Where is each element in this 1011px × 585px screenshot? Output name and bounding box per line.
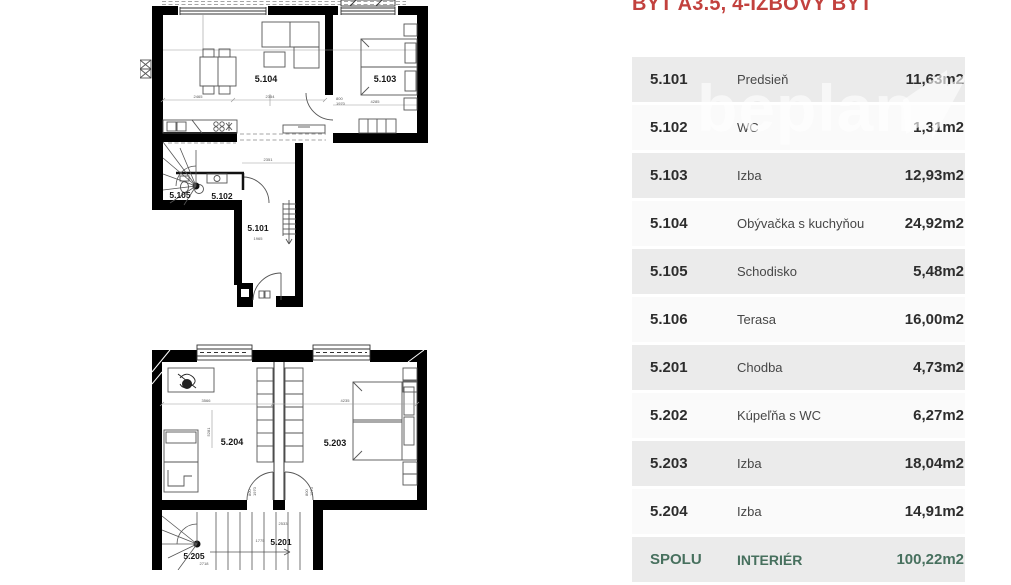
door-jamb-window [241, 289, 249, 297]
footer-interior-label: INTERIÉR [737, 552, 896, 568]
room-label-5104: 5.104 [255, 74, 278, 84]
room-name: Schodisko [737, 264, 913, 279]
room-number: 5.201 [632, 359, 737, 376]
room-number: 5.106 [632, 311, 737, 328]
footer-total-area: 100,22m2 [896, 551, 965, 568]
room-area: 4,73m2 [913, 359, 965, 376]
footer-total-label: SPOLU [632, 551, 737, 568]
dim-text: 2351 [264, 157, 274, 162]
table-row: 5.105Schodisko5,48m2 [632, 249, 965, 294]
room-name: Kúpeľňa s WC [737, 408, 913, 423]
dim-text: 2718 [200, 561, 210, 566]
room-area: 1,31m2 [913, 119, 965, 136]
room-name: WC [737, 120, 913, 135]
table-row: 5.203Izba18,04m2 [632, 441, 965, 486]
dim-text: 5281 [206, 427, 211, 437]
room-area: 14,91m2 [905, 503, 965, 520]
table-row: 5.106Terasa16,00m2 [632, 297, 965, 342]
floor-plan-second-level: 5.204 5.203 5.201 5.205 3566 4235 2533 1… [140, 344, 440, 570]
room-name: Terasa [737, 312, 905, 327]
table-row: 5.201Chodba4,73m2 [632, 345, 965, 390]
dim-text: 2465 [194, 94, 204, 99]
divider-wall [274, 362, 284, 500]
room-area: 16,00m2 [905, 311, 965, 328]
room-name: Obývačka s kuchyňou [737, 216, 905, 231]
room-number: 5.101 [632, 71, 737, 88]
room-area: 24,92m2 [905, 215, 965, 232]
room-name: Izba [737, 504, 905, 519]
table-row: 5.202Kúpeľňa s WC6,27m2 [632, 393, 965, 438]
furniture [164, 368, 417, 500]
table-footer-row: SPOLU INTERIÉR 100,22m2 [632, 537, 965, 582]
table-row: 5.101Predsieň11,63m2 [632, 57, 965, 102]
area-table-rows: 5.101Predsieň11,63m25.102WC1,31m25.103Iz… [632, 57, 965, 534]
table-row: 5.204Izba14,91m2 [632, 489, 965, 534]
floor-plan-first-level: 5.104 5.103 5.105 5.102 5.101 2465 2354 … [140, 0, 440, 315]
table-row: 5.104Obývačka s kuchyňou24,92m2 [632, 201, 965, 246]
room-name: Izba [737, 168, 905, 183]
room-area: 18,04m2 [905, 455, 965, 472]
apartment-title: BYT A3.5, 4-IZBOVÝ BYT [632, 0, 992, 16]
room-area: 11,63m2 [906, 71, 965, 88]
dim-text: 1965 [254, 236, 264, 241]
table-row: 5.102WC1,31m2 [632, 105, 965, 150]
dim-text: 2533 [279, 521, 289, 526]
room-number: 5.203 [632, 455, 737, 472]
room-name: Izba [737, 456, 905, 471]
spiral-stair [162, 512, 201, 570]
room-label-5201: 5.201 [270, 537, 292, 547]
room-label-5103: 5.103 [374, 74, 397, 84]
room-name: Predsieň [737, 72, 906, 87]
dim-text: 2354 [266, 94, 276, 99]
room-number: 5.202 [632, 407, 737, 424]
dim-text: 1775 [256, 538, 266, 543]
walls [152, 6, 428, 307]
door-size-text: 1970 [309, 486, 314, 496]
room-area: 5,48m2 [913, 263, 965, 280]
room-label-5105: 5.105 [169, 190, 191, 200]
room-number: 5.204 [632, 503, 737, 520]
dashed-terrace-lines [162, 2, 406, 144]
room-number: 5.104 [632, 215, 737, 232]
wardrobes [257, 368, 303, 462]
room-label-5102: 5.102 [211, 191, 233, 201]
dim-text: 4285 [371, 99, 381, 104]
room-area: 6,27m2 [913, 407, 965, 424]
room-number: 5.102 [632, 119, 737, 136]
door-size-text: 1970 [252, 486, 257, 496]
door-size-text: 1970 [336, 101, 346, 106]
room-area: 12,93m2 [905, 167, 965, 184]
dim-text: 3566 [202, 398, 212, 403]
room-name: Chodba [737, 360, 913, 375]
room-label-5204: 5.204 [221, 437, 244, 447]
dimension-lines [160, 402, 419, 448]
table-row: 5.103Izba12,93m2 [632, 153, 965, 198]
room-label-5101: 5.101 [247, 223, 269, 233]
furniture [140, 22, 417, 300]
room-label-5203: 5.203 [324, 438, 347, 448]
dim-text: 4235 [341, 398, 351, 403]
area-table: 5.101Predsieň11,63m25.102WC1,31m25.103Iz… [632, 57, 965, 585]
room-label-5205: 5.205 [183, 551, 205, 561]
room-number: 5.105 [632, 263, 737, 280]
room-number: 5.103 [632, 167, 737, 184]
